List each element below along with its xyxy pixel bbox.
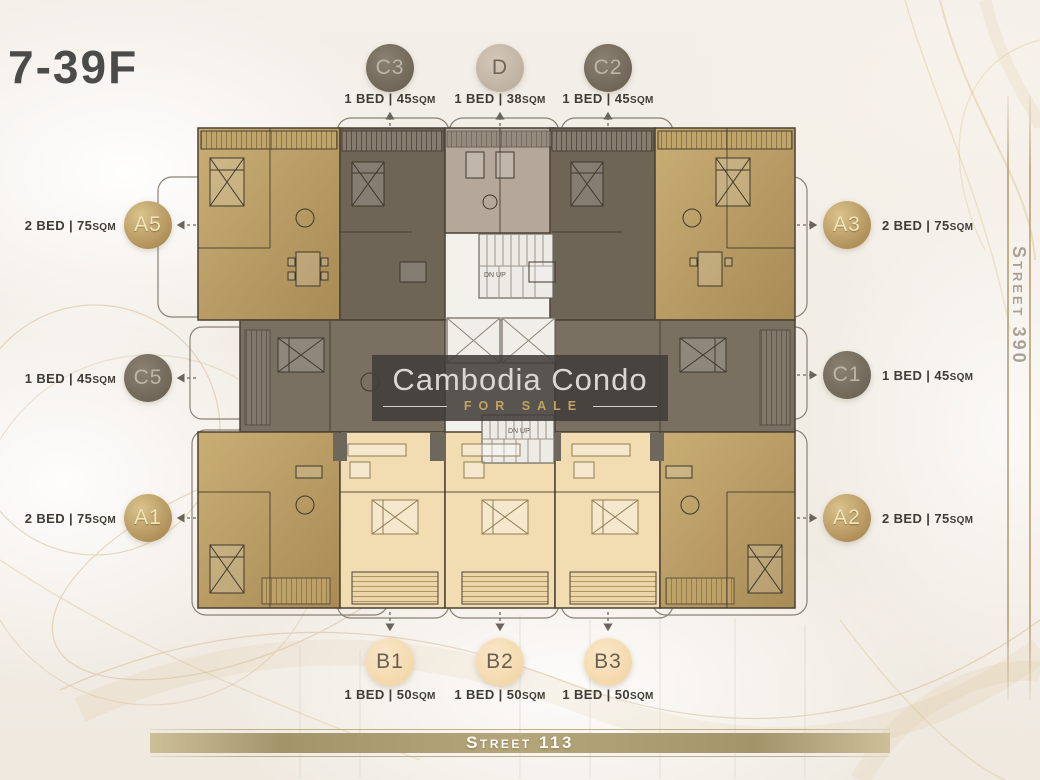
- unit-spec-c1: 1 BED | 45SQM: [882, 368, 973, 383]
- unit-badge-b2[interactable]: B2: [476, 638, 524, 686]
- street-113: Street 113: [150, 729, 890, 757]
- unit-badge-a2[interactable]: A2: [823, 494, 871, 542]
- floor-range-title: 7-39F: [8, 40, 138, 94]
- unit-badge-a1[interactable]: A1: [124, 494, 172, 542]
- floorplan-poster: DN UP DN UP: [0, 0, 1040, 780]
- stair-bottom-label: DN UP: [508, 428, 530, 435]
- unit-badge-b1[interactable]: B1: [366, 638, 414, 686]
- unit-badge-c1[interactable]: C1: [823, 351, 871, 399]
- unit-spec-b3: 1 BED | 50SQM: [528, 687, 688, 702]
- unit-badge-c2[interactable]: C2: [584, 44, 632, 92]
- watermark: Cambodia Condo FOR SALE: [372, 355, 668, 421]
- unit-spec-c2: 1 BED | 45SQM: [528, 91, 688, 106]
- watermark-rule-left: [383, 406, 447, 407]
- street-113-label: Street 113: [150, 733, 890, 753]
- unit-badge-a3[interactable]: A3: [823, 201, 871, 249]
- watermark-rule-right: [593, 406, 657, 407]
- stair-top-label: DN UP: [484, 272, 506, 279]
- unit-badge-c5[interactable]: C5: [124, 354, 172, 402]
- unit-c3: [340, 128, 445, 320]
- unit-badge-a5[interactable]: A5: [124, 201, 172, 249]
- street-113-rule-bottom: [150, 756, 890, 757]
- unit-c2: [550, 128, 655, 320]
- unit-spec-a5: 2 BED | 75SQM: [0, 218, 116, 233]
- unit-a3: [655, 128, 795, 320]
- unit-a5: [198, 128, 340, 320]
- unit-spec-a2: 2 BED | 75SQM: [882, 511, 973, 526]
- unit-spec-c5: 1 BED | 45SQM: [0, 371, 116, 386]
- unit-badge-c3[interactable]: C3: [366, 44, 414, 92]
- watermark-name: Cambodia Condo: [392, 363, 647, 397]
- unit-badge-d[interactable]: D: [476, 44, 524, 92]
- unit-spec-a3: 2 BED | 75SQM: [882, 218, 973, 233]
- watermark-tagline: FOR SALE: [457, 399, 583, 413]
- unit-badge-b3[interactable]: B3: [584, 638, 632, 686]
- unit-spec-a1: 2 BED | 75SQM: [0, 511, 116, 526]
- street-113-rule-top: [150, 729, 890, 730]
